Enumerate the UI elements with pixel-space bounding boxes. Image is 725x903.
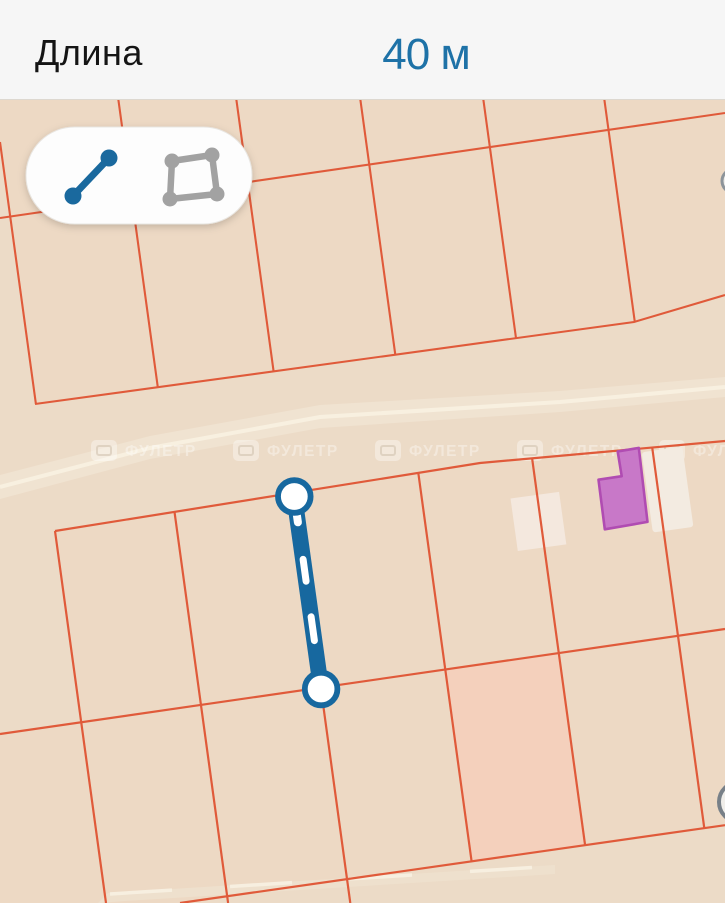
svg-text:ФУЛЕТР: ФУЛЕТР	[693, 443, 725, 460]
svg-text:ФУЛЕТР: ФУЛЕТР	[409, 443, 481, 460]
svg-text:ФУЛЕТР: ФУЛЕТР	[125, 443, 197, 460]
svg-text:ФУЛЕТР: ФУЛЕТР	[267, 443, 339, 460]
